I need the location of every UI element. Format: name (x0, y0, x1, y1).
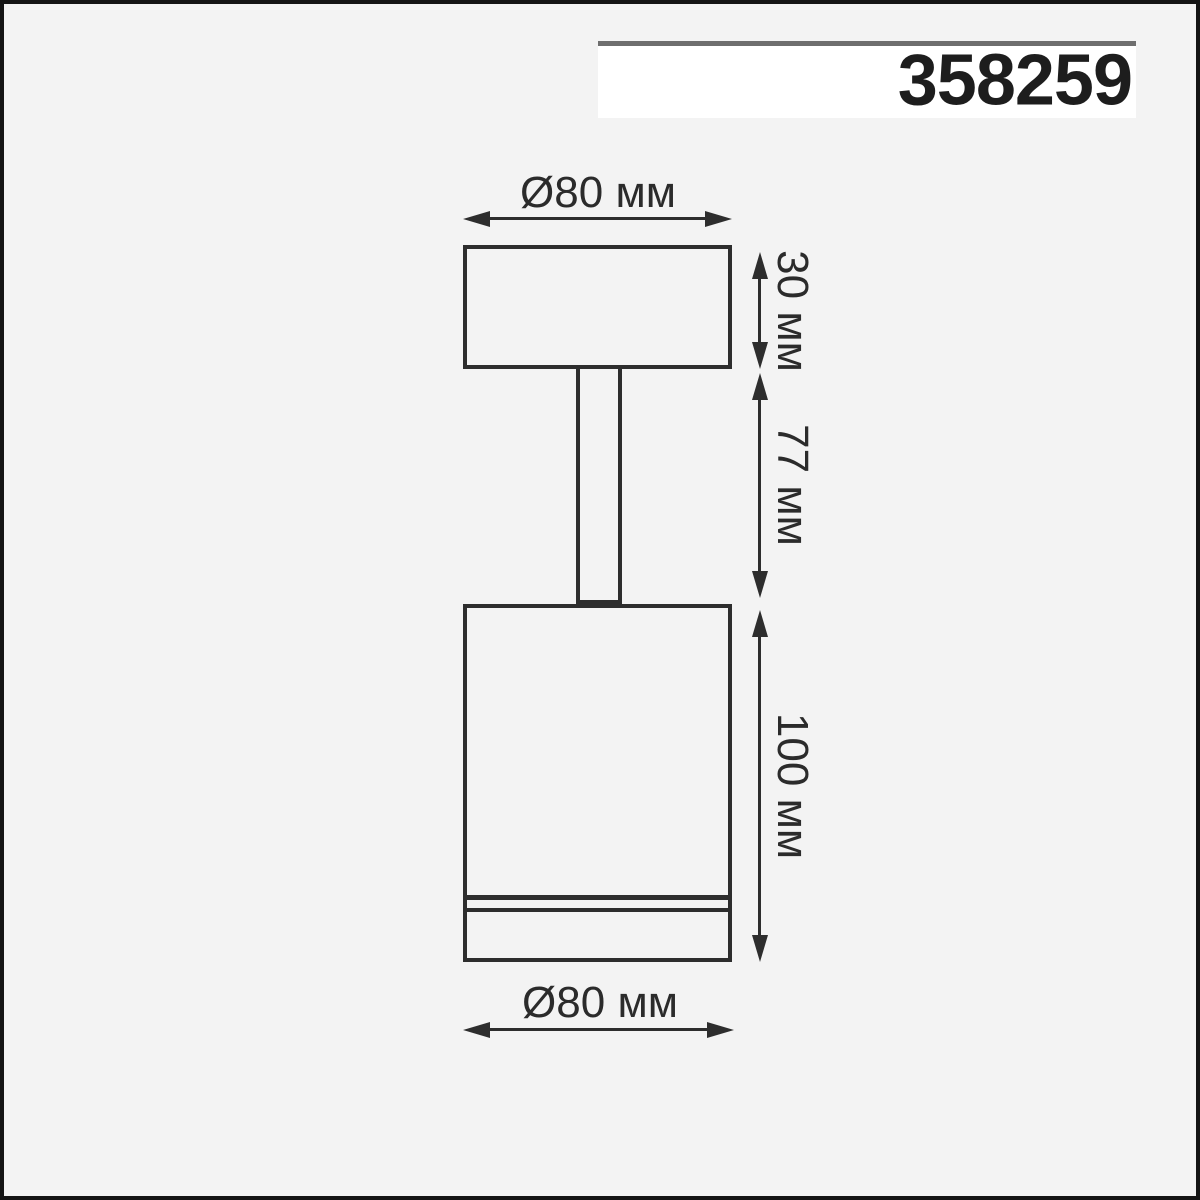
base-height-label: 30 мм (770, 250, 814, 372)
product-number: 358259 (898, 45, 1132, 117)
dimension-line (485, 217, 710, 220)
arrow-head-right-icon (707, 1022, 734, 1038)
dimension-line (758, 630, 761, 942)
top-diameter-arrow (463, 206, 732, 232)
arrow-head-right-icon (705, 211, 732, 227)
mount-plate-outline (463, 245, 732, 369)
body-trim-line-upper (463, 895, 732, 900)
arrow-head-down-icon (752, 571, 768, 598)
arrow-head-down-icon (752, 935, 768, 962)
stem-outline (576, 365, 622, 604)
bottom-diameter-arrow (463, 1017, 734, 1043)
body-height-label: 100 мм (770, 713, 814, 859)
arrow-head-down-icon (752, 342, 768, 369)
dimension-line (758, 272, 761, 349)
stem-height-label: 77 мм (770, 424, 814, 546)
dimension-line (485, 1028, 712, 1031)
diagram-canvas: 358259 Ø80 мм 30 мм 77 мм 100 мм Ø80 мм (0, 0, 1200, 1200)
dimension-line (758, 393, 761, 578)
product-number-badge: 358259 (598, 46, 1136, 118)
body-trim-line-lower (463, 908, 732, 912)
